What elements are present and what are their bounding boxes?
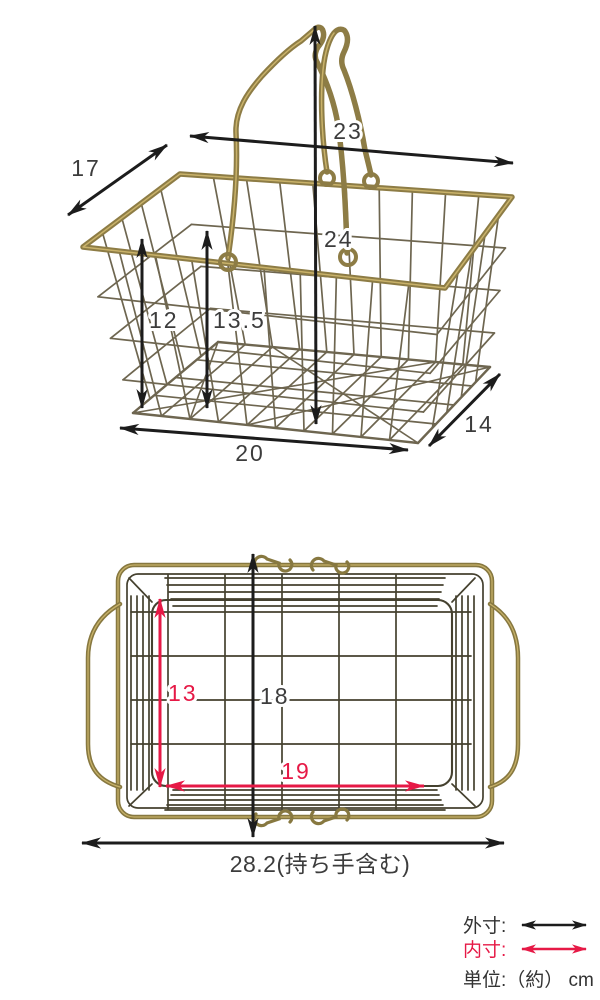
left-height-label: 12	[149, 307, 179, 333]
inner-depth-label: 13	[168, 680, 198, 706]
legend: 外寸: 内寸: 単位:（約） cm	[463, 915, 594, 991]
top-width-label: 23	[333, 118, 363, 144]
topdown-dimensions: 18 13 19 28.2(持ち手含む)	[82, 554, 504, 877]
perspective-dimensions: 17 23 24 12 13.5 20 14	[68, 26, 513, 466]
legend-unit-label: 単位:（約） cm	[463, 969, 594, 991]
inner-width-label: 19	[281, 758, 311, 784]
legend-inner-label: 内寸:	[463, 939, 506, 961]
outer-width-label: 28.2(持ち手含む)	[230, 851, 411, 877]
legend-outer-label: 外寸:	[463, 915, 506, 937]
total-height-arrow	[315, 26, 316, 424]
basket-rim	[83, 174, 512, 288]
bottom-width-label: 20	[235, 440, 265, 466]
bottom-depth-label: 14	[464, 411, 494, 437]
top-depth-label: 17	[71, 155, 101, 181]
center-height-label: 13.5	[213, 307, 266, 333]
total-height-label: 24	[324, 226, 354, 252]
product-dimension-diagram: 17 23 24 12 13.5 20 14	[0, 0, 600, 1000]
outer-depth-label: 18	[260, 683, 290, 709]
basket-perspective-illustration	[83, 27, 512, 443]
